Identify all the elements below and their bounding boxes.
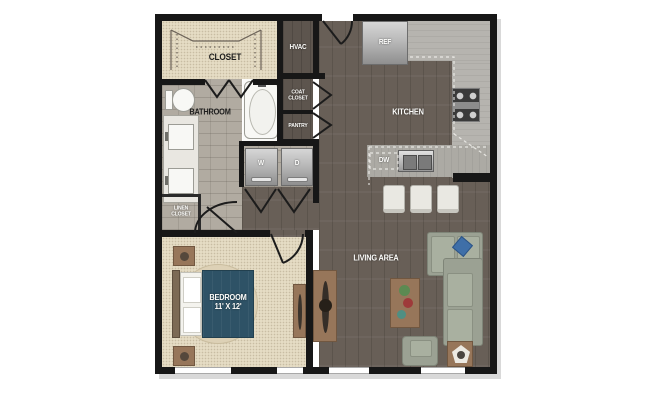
doors-and-details-overlay — [155, 14, 497, 374]
closet-rods — [171, 30, 261, 70]
entry-door-leaf — [323, 21, 341, 44]
label-linen-closet: LINEN CLOSET — [171, 206, 190, 219]
bathroom-door-leaf — [207, 207, 237, 233]
bedroom-door-leaf — [271, 234, 283, 263]
label-living-area: LIVING AREA — [353, 253, 398, 262]
label-dryer: D — [295, 160, 299, 168]
apartment-floor-plan: CLOSET HVAC BATHROOM COAT CLOSET PANTRY … — [155, 14, 497, 374]
closet-bifold-door — [205, 80, 253, 97]
pantry-door — [313, 113, 331, 138]
coat-closet-door — [313, 82, 331, 109]
label-hvac: HVAC — [289, 44, 306, 52]
label-kitchen: KITCHEN — [392, 107, 423, 116]
label-dishwasher: DW — [379, 157, 389, 165]
laundry-bifold-door — [245, 189, 310, 212]
label-coat-closet: COAT CLOSET — [288, 90, 307, 103]
label-washer: W — [258, 160, 264, 168]
floor-plan-image: CLOSET HVAC BATHROOM COAT CLOSET PANTRY … — [0, 0, 650, 408]
label-ref: REF — [379, 39, 391, 47]
label-bedroom: BEDROOM 11' X 12' — [209, 293, 246, 311]
bedroom-door-swing — [283, 234, 303, 263]
label-bathroom: BATHROOM — [189, 107, 230, 116]
entry-door-swing — [341, 21, 352, 44]
label-closet: CLOSET — [209, 52, 241, 62]
label-pantry: PANTRY — [288, 123, 307, 129]
peninsula-edge-dashes — [369, 147, 488, 185]
